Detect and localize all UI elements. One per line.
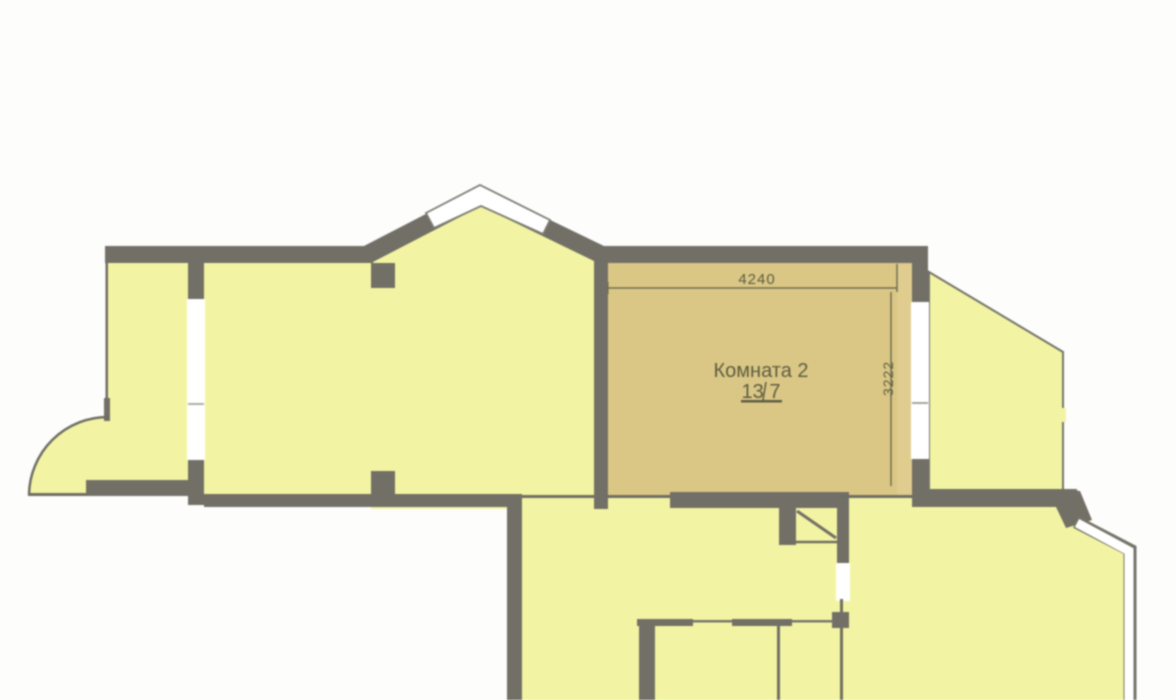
svg-text:13 7: 13 7 bbox=[742, 381, 781, 403]
svg-text:Комната 2: Комната 2 bbox=[714, 360, 809, 382]
svg-text:4240: 4240 bbox=[738, 271, 775, 288]
svg-text:3222: 3222 bbox=[880, 361, 896, 396]
